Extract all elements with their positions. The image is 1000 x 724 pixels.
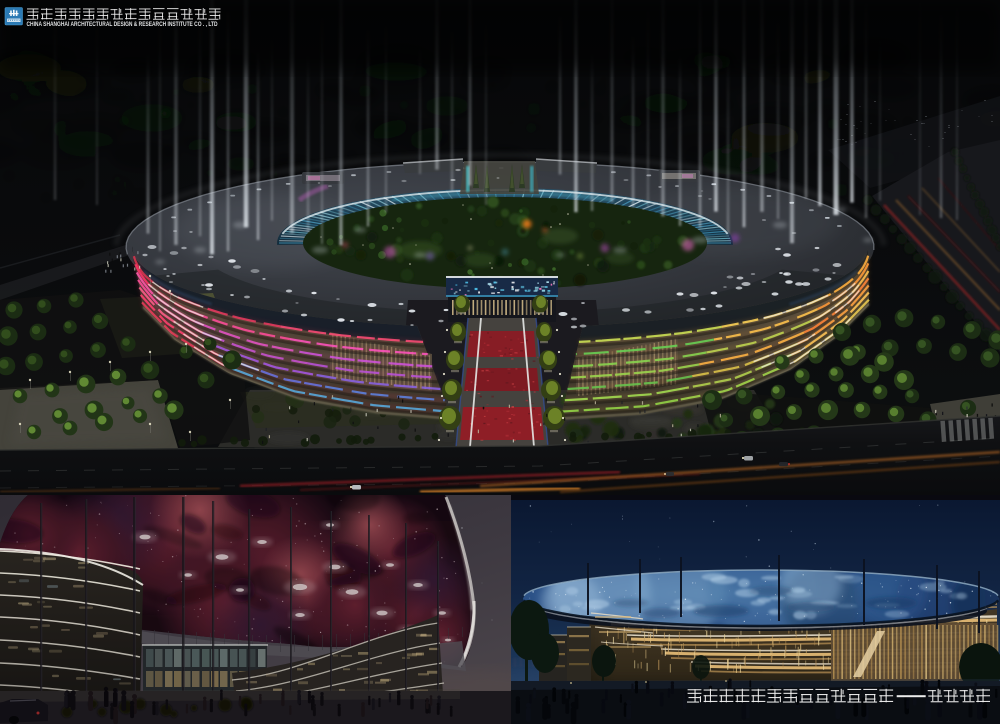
svg-text:CHINA SHANGHAI ARCHITECTURAL D: CHINA SHANGHAI ARCHITECTURAL DESIGN & RE…: [27, 21, 218, 28]
